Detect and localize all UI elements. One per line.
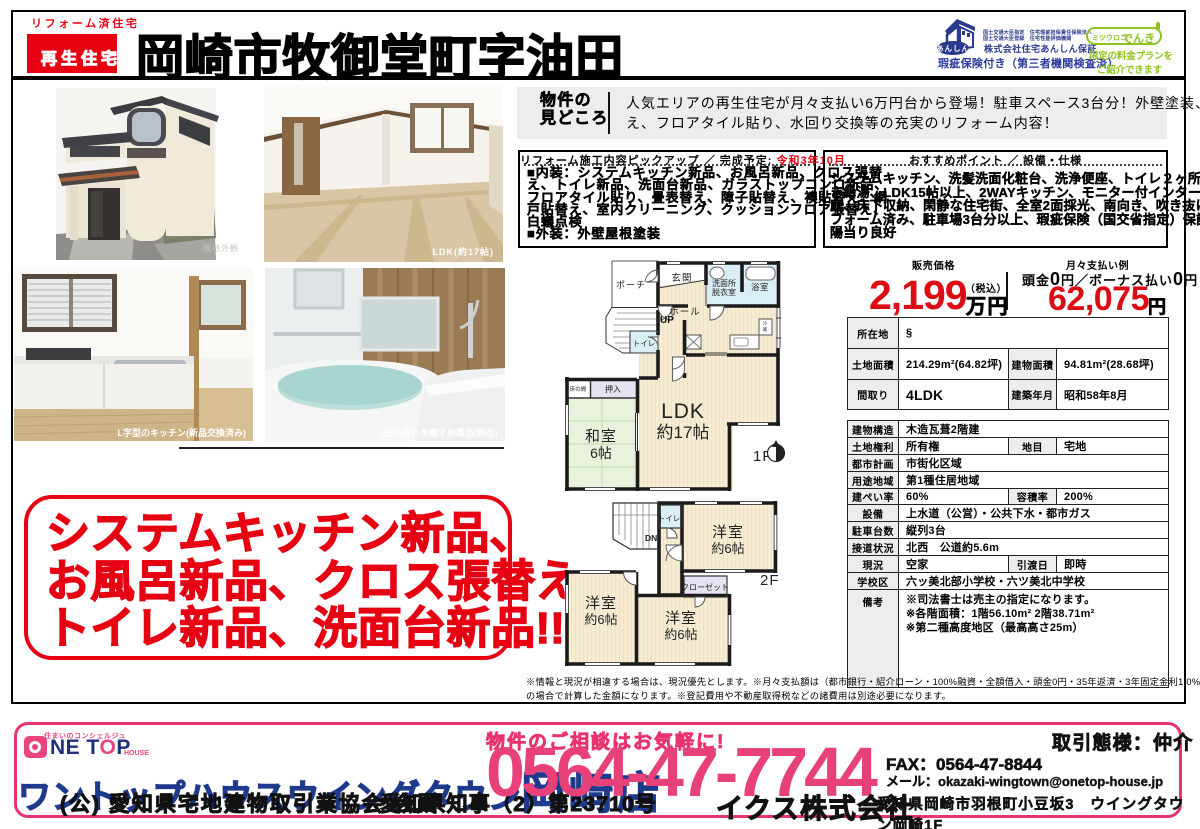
svg-text:洋室: 洋室 bbox=[585, 595, 617, 612]
svg-text:トイレ: トイレ bbox=[658, 514, 681, 523]
svg-text:押入: 押入 bbox=[605, 384, 621, 394]
svg-text:ポーチ: ポーチ bbox=[616, 280, 646, 290]
svg-text:6帖: 6帖 bbox=[590, 445, 612, 461]
svg-text:蔵: 蔵 bbox=[763, 326, 768, 333]
svg-text:トイレ: トイレ bbox=[633, 339, 656, 348]
svg-text:約17帖: 約17帖 bbox=[657, 423, 710, 442]
svg-text:約6帖: 約6帖 bbox=[664, 627, 697, 642]
svg-text:脱衣室: 脱衣室 bbox=[712, 287, 736, 297]
svg-text:LDK: LDK bbox=[661, 400, 705, 423]
svg-text:浴室: 浴室 bbox=[751, 282, 769, 292]
svg-text:UP: UP bbox=[660, 315, 674, 326]
svg-text:約6帖: 約6帖 bbox=[584, 612, 617, 627]
svg-text:現地外観: 現地外観 bbox=[203, 243, 239, 253]
svg-text:冷: 冷 bbox=[763, 320, 768, 327]
svg-text:あんしん: あんしん bbox=[936, 44, 970, 53]
svg-text:L字型のキッチン(新品交換済み): L字型のキッチン(新品交換済み) bbox=[118, 427, 247, 438]
svg-text:1日の疲れを癒すお風呂(新品): 1日の疲れを癒すお風呂(新品) bbox=[379, 427, 498, 438]
svg-text:洗面所: 洗面所 bbox=[712, 278, 736, 288]
svg-text:洋室: 洋室 bbox=[665, 610, 697, 627]
svg-text:約6帖: 約6帖 bbox=[711, 541, 744, 556]
svg-text:和室: 和室 bbox=[585, 428, 617, 445]
svg-text:DN: DN bbox=[645, 533, 657, 543]
svg-text:2F: 2F bbox=[760, 572, 780, 589]
svg-text:LDK(約17帖): LDK(約17帖) bbox=[432, 246, 494, 257]
svg-text:玄関: 玄関 bbox=[671, 272, 692, 284]
svg-text:床の間: 床の間 bbox=[570, 385, 587, 393]
svg-text:クローゼット: クローゼット bbox=[681, 582, 729, 592]
svg-text:洋室: 洋室 bbox=[712, 524, 744, 541]
svg-text:ホール: ホール bbox=[669, 307, 701, 318]
